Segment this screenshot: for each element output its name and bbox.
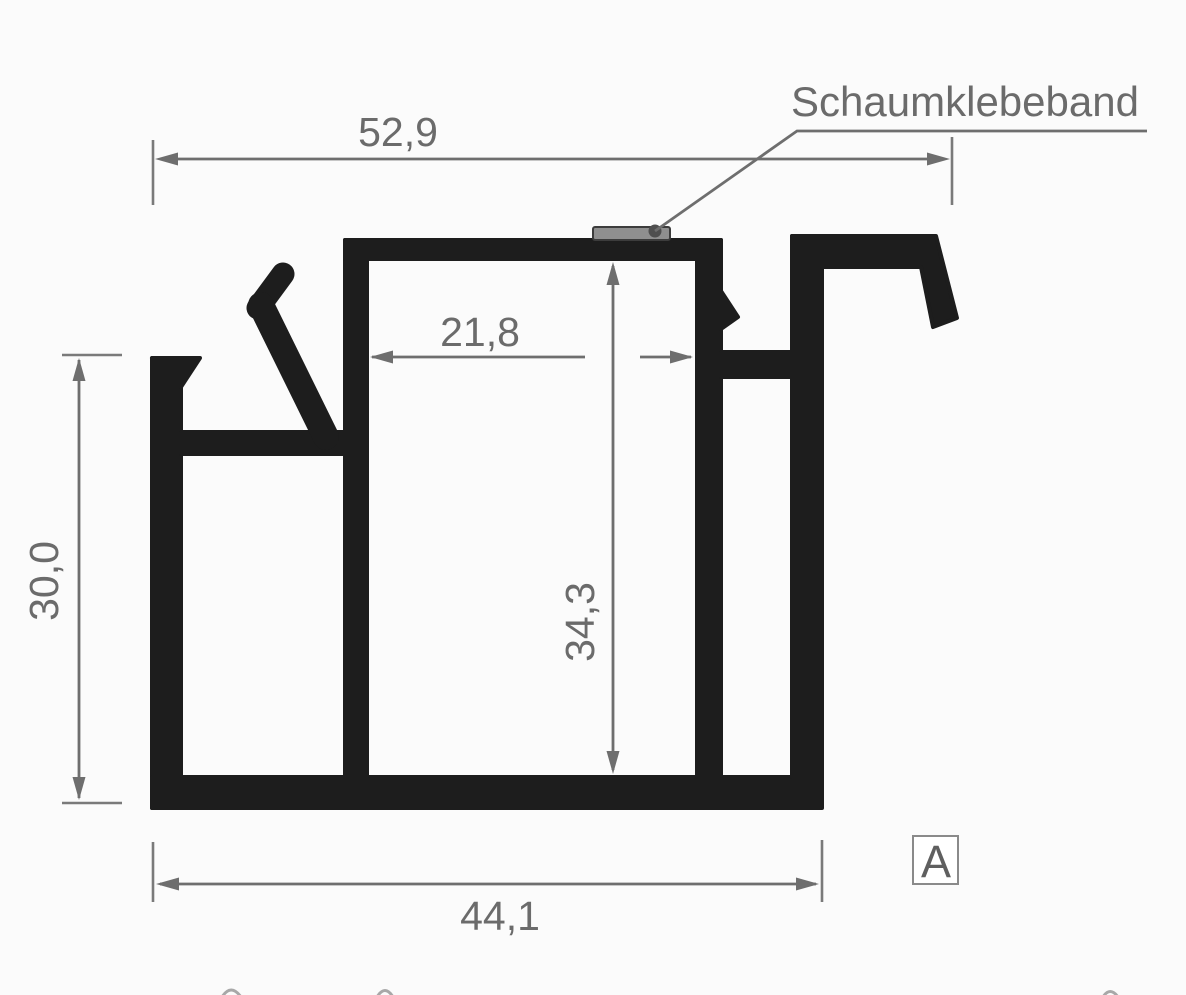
- arrowhead-left-icon: [156, 878, 179, 891]
- arrowhead-right-icon: [670, 351, 693, 364]
- cropped-glyph-fragment: [377, 991, 393, 995]
- section-marker-label: A: [921, 836, 951, 887]
- profile-barb: [721, 291, 738, 329]
- dimension-label-inner-channel-width: 21,8: [440, 309, 520, 355]
- profile-box-right-wall: [697, 240, 721, 777]
- callout-label: Schaumklebeband: [791, 78, 1139, 125]
- cropped-text-fragments: [222, 990, 1118, 995]
- profile-left-wall: [152, 358, 181, 808]
- arrowhead-right-icon: [927, 153, 950, 166]
- profile-gasket-leg: [261, 305, 326, 437]
- profile-bottom-bar: [152, 777, 822, 808]
- dimension-base-width: 44,1: [153, 840, 822, 939]
- aluminium-profile-shape: [152, 236, 957, 808]
- technical-drawing-page: Schaumklebeband 52,9 21,8 34,3: [0, 0, 1186, 995]
- dimension-inner-height: 34,3: [557, 262, 620, 774]
- profile-box-left-wall: [345, 240, 367, 777]
- profile-cross-section-drawing: Schaumklebeband 52,9 21,8 34,3: [0, 0, 1186, 995]
- dimension-label-overall-width: 52,9: [358, 109, 438, 155]
- dimension-label-inner-height: 34,3: [557, 582, 603, 662]
- profile-top-rail: [345, 240, 721, 259]
- dimension-left-height: 30,0: [21, 355, 122, 803]
- dimension-label-base-width: 44,1: [460, 893, 540, 939]
- dimension-inner-channel-width: 21,8: [370, 309, 693, 364]
- callout-schaumklebeband: Schaumklebeband: [655, 78, 1147, 231]
- section-marker: A: [913, 836, 958, 887]
- cropped-glyph-fragment: [1103, 992, 1118, 995]
- arrowhead-right-icon: [796, 878, 819, 891]
- arrowhead-left-icon: [155, 153, 178, 166]
- cropped-glyph-fragment: [222, 990, 241, 995]
- profile-right-wall: [792, 236, 822, 777]
- arrowhead-down-icon: [73, 777, 86, 800]
- profile-bridge: [721, 352, 792, 377]
- dimension-label-left-height: 30,0: [21, 541, 67, 621]
- foam-tape-group: [593, 225, 670, 241]
- callout-leader-line: [655, 131, 1147, 231]
- arrowhead-up-icon: [607, 262, 620, 285]
- arrowhead-left-icon: [370, 351, 393, 364]
- arrowhead-down-icon: [607, 751, 620, 774]
- arrowhead-up-icon: [73, 358, 86, 381]
